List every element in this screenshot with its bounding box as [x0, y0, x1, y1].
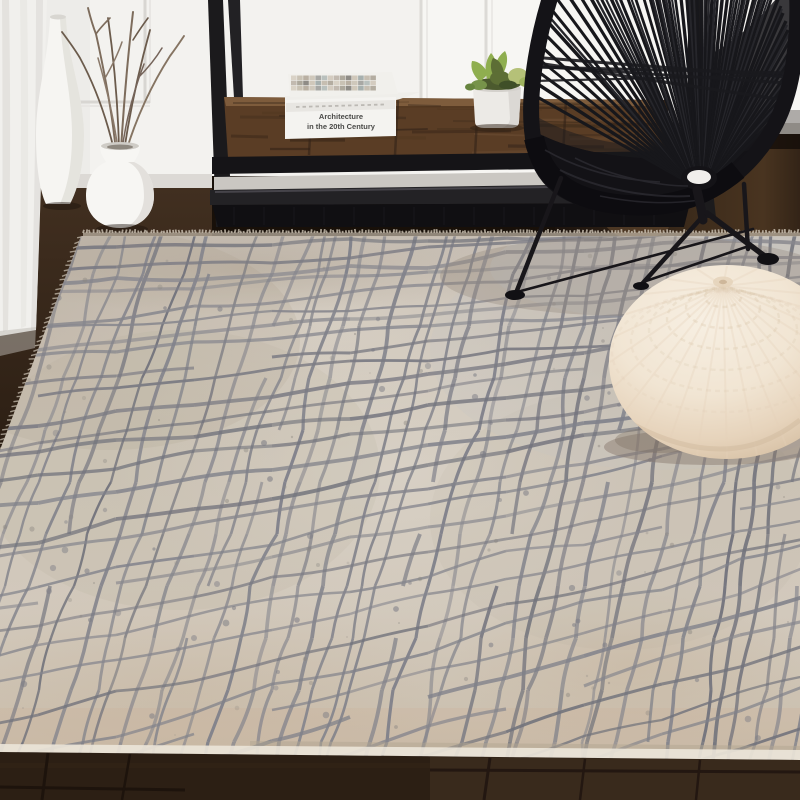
- svg-text:Architecture: Architecture: [319, 112, 363, 121]
- svg-text:in the 20th Century: in the 20th Century: [307, 122, 376, 131]
